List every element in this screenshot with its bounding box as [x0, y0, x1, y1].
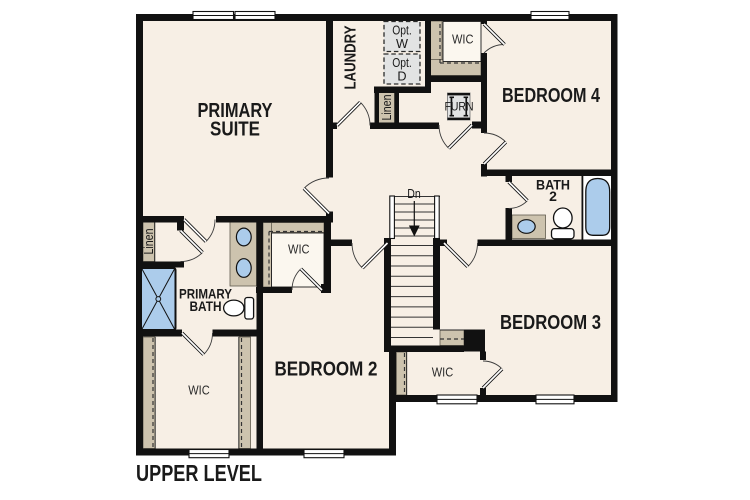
svg-text:LAUNDRY: LAUNDRY [343, 25, 360, 89]
svg-text:BEDROOM 4: BEDROOM 4 [502, 84, 600, 107]
svg-text:BEDROOM 2: BEDROOM 2 [275, 358, 378, 381]
svg-text:WIC: WIC [288, 242, 310, 257]
svg-text:Opt.: Opt. [392, 56, 412, 70]
svg-text:SUITE: SUITE [210, 117, 260, 140]
svg-text:Linen: Linen [141, 229, 156, 255]
svg-text:Opt.: Opt. [392, 24, 412, 38]
svg-text:BEDROOM 3: BEDROOM 3 [500, 311, 601, 334]
svg-text:Dn: Dn [407, 187, 421, 201]
svg-text:WIC: WIC [452, 31, 474, 46]
svg-text:WIC: WIC [432, 365, 454, 380]
svg-text:UPPER LEVEL: UPPER LEVEL [136, 460, 262, 486]
svg-text:WIC: WIC [188, 383, 210, 398]
svg-text:W: W [396, 37, 408, 51]
svg-text:Linen: Linen [379, 95, 394, 121]
svg-text:FURN: FURN [445, 100, 474, 114]
svg-text:BATH: BATH [190, 298, 222, 314]
svg-text:2: 2 [549, 188, 557, 204]
svg-text:D: D [397, 70, 406, 84]
